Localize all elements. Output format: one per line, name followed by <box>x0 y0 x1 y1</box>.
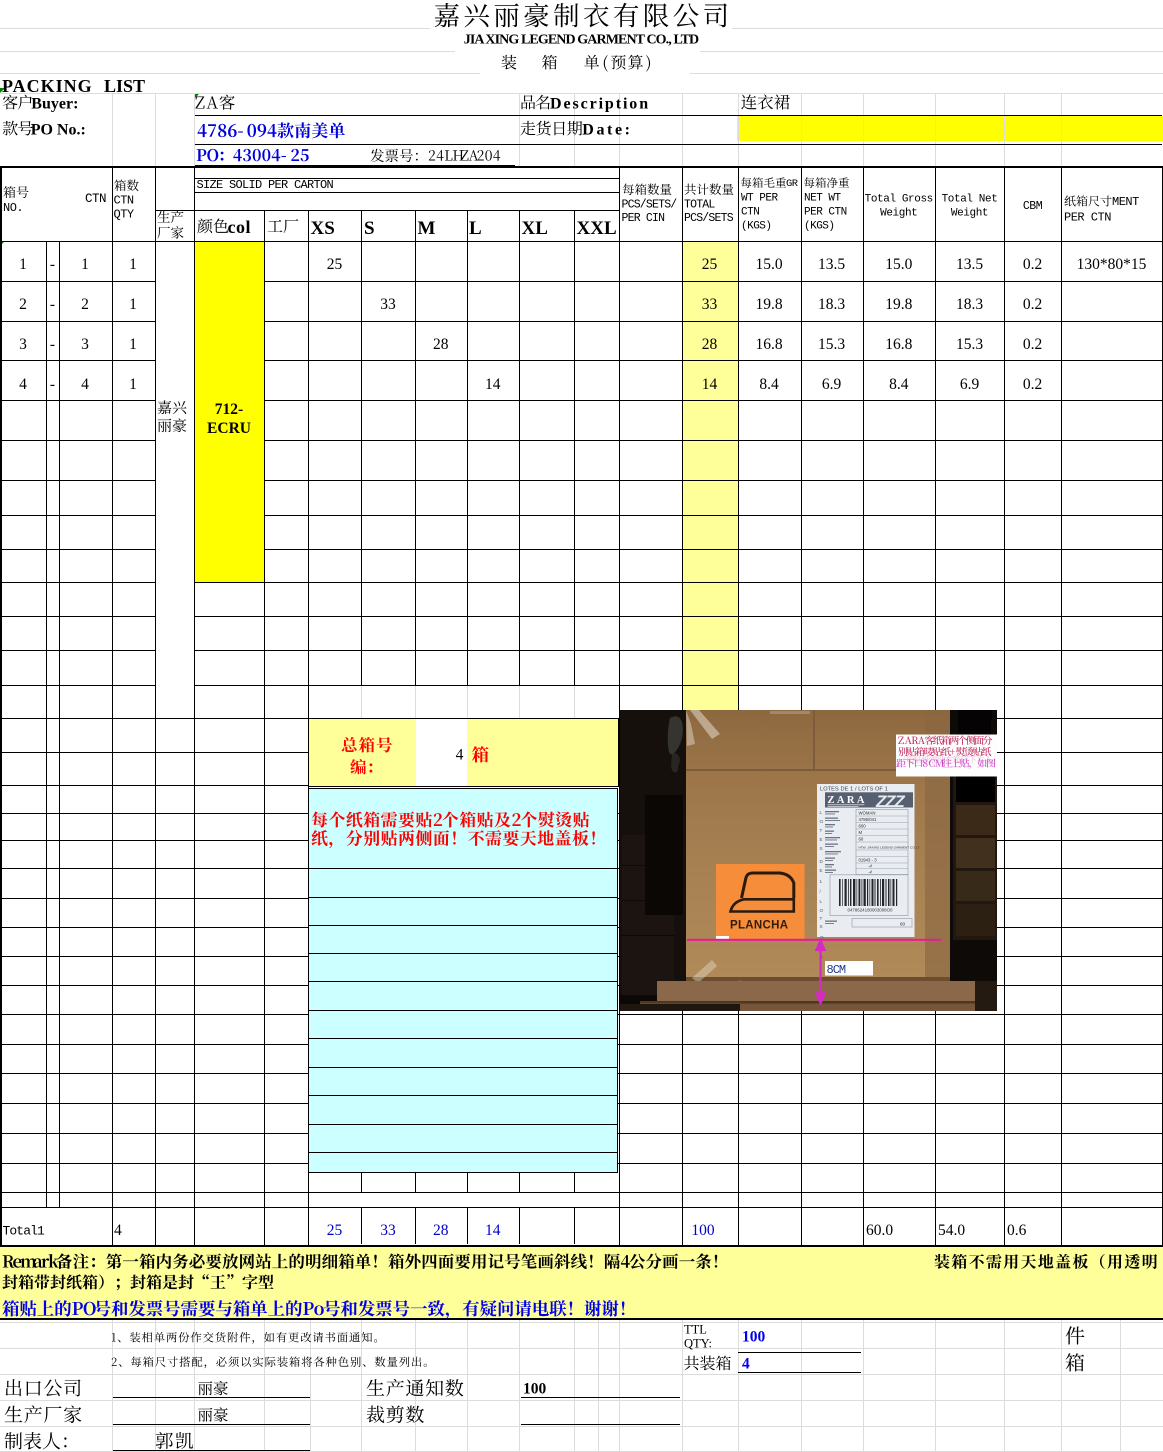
svg-text:4: 4 <box>114 1222 122 1239</box>
svg-text:QTY:: QTY: <box>684 1337 712 1351</box>
svg-text:XL: XL <box>522 218 548 239</box>
svg-text:PACKING: PACKING <box>2 76 93 96</box>
svg-text:33: 33 <box>380 296 396 313</box>
svg-text:L: L <box>469 218 482 239</box>
svg-text:JIA XING LEGEND GARMENT CO., L: JIA XING LEGEND GARMENT CO., LTD <box>464 32 699 47</box>
svg-text:(KGS): (KGS) <box>741 221 772 233</box>
svg-text:2: 2 <box>81 296 89 313</box>
svg-text:-: - <box>50 376 55 393</box>
svg-text:1: 1 <box>81 256 89 273</box>
svg-text:0.2: 0.2 <box>1023 376 1042 393</box>
svg-text:8.4: 8.4 <box>889 376 909 393</box>
svg-text:(KGS): (KGS) <box>804 221 835 233</box>
svg-text:1: 1 <box>129 296 137 313</box>
svg-text:15.3: 15.3 <box>818 336 845 353</box>
svg-text:3: 3 <box>81 336 89 353</box>
svg-text:18.3: 18.3 <box>818 296 845 313</box>
svg-text:-: - <box>50 256 55 273</box>
svg-text:1: 1 <box>129 256 137 273</box>
svg-text:25: 25 <box>702 256 718 273</box>
svg-text:15.0: 15.0 <box>755 256 782 273</box>
svg-text:28: 28 <box>433 336 449 353</box>
svg-text:XXL: XXL <box>577 218 617 239</box>
svg-text:PER CIN: PER CIN <box>622 212 665 225</box>
svg-text:3: 3 <box>19 336 27 353</box>
svg-text:19.8: 19.8 <box>755 296 782 313</box>
svg-text:TOTAL: TOTAL <box>684 199 715 212</box>
svg-text:col: col <box>228 217 252 237</box>
svg-text:M: M <box>418 218 436 239</box>
svg-text:0.6: 0.6 <box>1007 1222 1027 1239</box>
svg-text:28: 28 <box>433 1222 449 1239</box>
svg-text:S: S <box>364 218 375 239</box>
svg-text:Date:: Date: <box>582 122 632 139</box>
svg-text:-: - <box>50 336 55 353</box>
svg-text:18.3: 18.3 <box>956 296 983 313</box>
svg-text:0.2: 0.2 <box>1023 256 1042 273</box>
svg-text:130*80*15: 130*80*15 <box>1077 256 1147 273</box>
svg-text:NET WT: NET WT <box>804 193 842 205</box>
svg-text:NO.: NO. <box>3 201 23 215</box>
svg-text:SIZE SOLID PER CARTON: SIZE SOLID PER CARTON <box>197 178 334 192</box>
svg-text:33: 33 <box>380 1222 396 1239</box>
svg-text:15.3: 15.3 <box>956 336 983 353</box>
svg-text:1: 1 <box>129 376 137 393</box>
svg-text:Description: Description <box>550 96 650 113</box>
svg-text:28: 28 <box>702 336 718 353</box>
svg-text:6.9: 6.9 <box>822 376 842 393</box>
svg-text:0.2: 0.2 <box>1023 296 1042 313</box>
svg-text:54.0: 54.0 <box>938 1222 965 1239</box>
svg-text:TTL: TTL <box>684 1323 707 1337</box>
svg-text:1: 1 <box>19 256 27 273</box>
svg-text:16.8: 16.8 <box>755 336 782 353</box>
svg-text:13.5: 13.5 <box>818 256 845 273</box>
svg-text:712-: 712- <box>215 401 243 418</box>
svg-text:Total Net: Total Net <box>942 194 998 206</box>
svg-text:14: 14 <box>485 376 501 393</box>
svg-text:13.5: 13.5 <box>956 256 983 273</box>
svg-text:WT PER: WT PER <box>741 193 779 205</box>
svg-text:19.8: 19.8 <box>885 296 912 313</box>
svg-text:ECRU: ECRU <box>207 420 251 437</box>
svg-text:60.0: 60.0 <box>866 1222 893 1239</box>
svg-text:Weight: Weight <box>951 208 988 220</box>
svg-text:25: 25 <box>327 1222 343 1239</box>
svg-text:14: 14 <box>485 1222 501 1239</box>
svg-text:QTY: QTY <box>114 208 134 222</box>
svg-text:4: 4 <box>19 376 27 393</box>
svg-text:Total1: Total1 <box>3 1224 46 1239</box>
svg-text:4: 4 <box>456 747 464 764</box>
svg-text:PER CTN: PER CTN <box>804 207 847 219</box>
svg-text:2: 2 <box>19 296 27 313</box>
svg-text:25: 25 <box>327 256 343 273</box>
svg-text:0.2: 0.2 <box>1023 336 1042 353</box>
svg-text:6.9: 6.9 <box>960 376 980 393</box>
svg-text:14: 14 <box>702 376 718 393</box>
svg-text:PCS/SETS/: PCS/SETS/ <box>622 199 678 212</box>
svg-text:100: 100 <box>742 1329 766 1346</box>
svg-text:MENT: MENT <box>1112 195 1139 209</box>
svg-text:CTN: CTN <box>741 207 759 219</box>
svg-text:4: 4 <box>81 376 89 393</box>
svg-text:16.8: 16.8 <box>885 336 912 353</box>
svg-text:PER CTN: PER CTN <box>1064 211 1111 225</box>
svg-text:LIST: LIST <box>104 76 145 96</box>
svg-text:100: 100 <box>523 1381 547 1398</box>
svg-text:100: 100 <box>691 1222 715 1239</box>
svg-text:1: 1 <box>129 336 137 353</box>
svg-text:Weight: Weight <box>880 208 917 220</box>
svg-text:Total Gross: Total Gross <box>865 194 933 206</box>
svg-text:PO No.:: PO No.: <box>31 122 86 139</box>
svg-text:33: 33 <box>702 296 718 313</box>
svg-text:XS: XS <box>311 218 335 239</box>
svg-text:GR: GR <box>786 178 799 190</box>
svg-text:Buyer:: Buyer: <box>31 96 78 113</box>
svg-text:CBM: CBM <box>1023 200 1043 213</box>
svg-text:PCS/SETS: PCS/SETS <box>684 212 734 225</box>
svg-text:-: - <box>50 296 55 313</box>
svg-text:4: 4 <box>742 1356 750 1373</box>
svg-text:15.0: 15.0 <box>885 256 912 273</box>
svg-text:8.4: 8.4 <box>759 376 779 393</box>
svg-text:CTN: CTN <box>85 192 106 206</box>
svg-text:CTN: CTN <box>114 194 134 208</box>
